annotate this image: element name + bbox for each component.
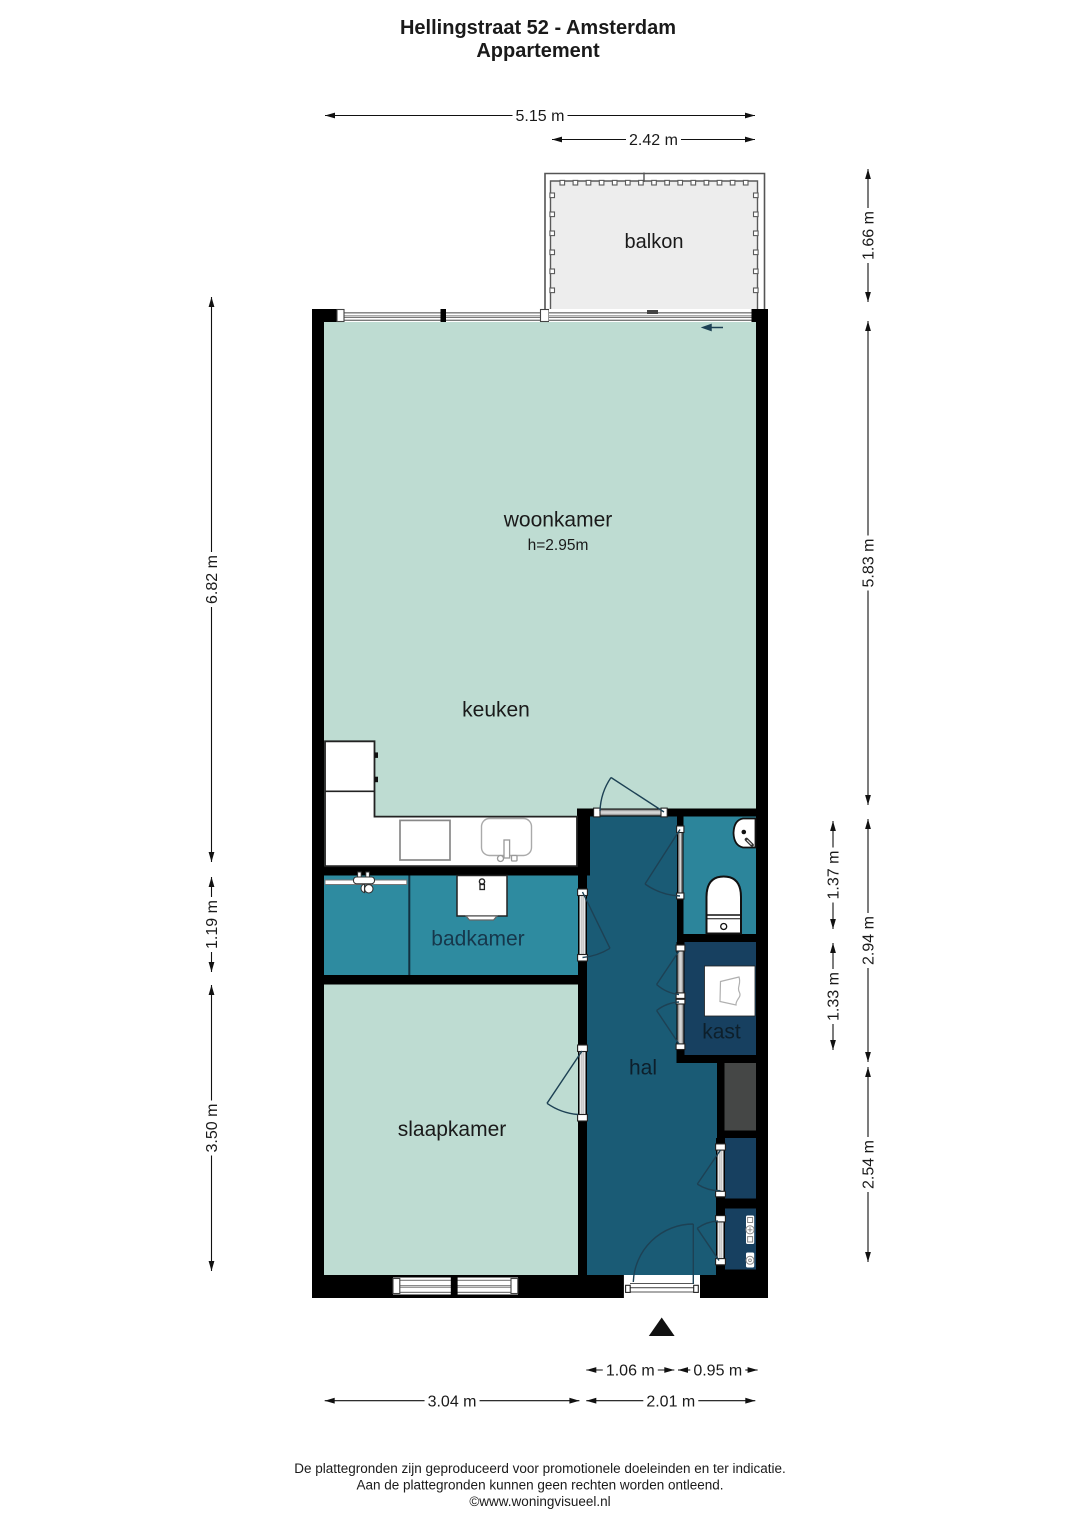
svg-text:keuken: keuken	[462, 699, 530, 722]
svg-text:1.66 m: 1.66 m	[861, 211, 878, 260]
svg-text:5.83 m: 5.83 m	[861, 539, 878, 588]
svg-text:kast: kast	[702, 1021, 741, 1044]
svg-text:5.15 m: 5.15 m	[516, 108, 565, 125]
svg-text:woonkamer: woonkamer	[503, 509, 613, 532]
svg-text:Aan de plattegronden kunnen ge: Aan de plattegronden kunnen geen rechten…	[356, 1477, 723, 1492]
svg-text:3.04 m: 3.04 m	[428, 1393, 477, 1410]
svg-text:balkon: balkon	[625, 231, 684, 253]
svg-text:1.33 m: 1.33 m	[826, 972, 843, 1021]
svg-text:2.54 m: 2.54 m	[861, 1140, 878, 1189]
svg-text:1.19 m: 1.19 m	[204, 900, 221, 949]
svg-text:2.01 m: 2.01 m	[646, 1393, 695, 1410]
svg-text:1.06 m: 1.06 m	[606, 1363, 655, 1380]
svg-text:hal: hal	[629, 1057, 657, 1080]
svg-text:0.95 m: 0.95 m	[693, 1363, 742, 1380]
svg-text:h=2.95m: h=2.95m	[528, 537, 589, 554]
svg-text:slaapkamer: slaapkamer	[398, 1118, 507, 1141]
svg-text:badkamer: badkamer	[431, 928, 524, 951]
svg-text:2.94 m: 2.94 m	[861, 916, 878, 965]
svg-text:6.82 m: 6.82 m	[204, 555, 221, 604]
svg-text:3.50 m: 3.50 m	[204, 1104, 221, 1153]
svg-text:1.37 m: 1.37 m	[826, 851, 843, 900]
svg-text:De plattegronden zijn geproduc: De plattegronden zijn geproduceerd voor …	[294, 1461, 786, 1476]
svg-text:©www.woningvisueel.nl: ©www.woningvisueel.nl	[469, 1494, 610, 1509]
svg-text:Hellingstraat 52 - Amsterdam: Hellingstraat 52 - Amsterdam	[400, 17, 676, 39]
svg-text:2.42 m: 2.42 m	[629, 132, 678, 149]
svg-text:Appartement: Appartement	[476, 40, 600, 62]
